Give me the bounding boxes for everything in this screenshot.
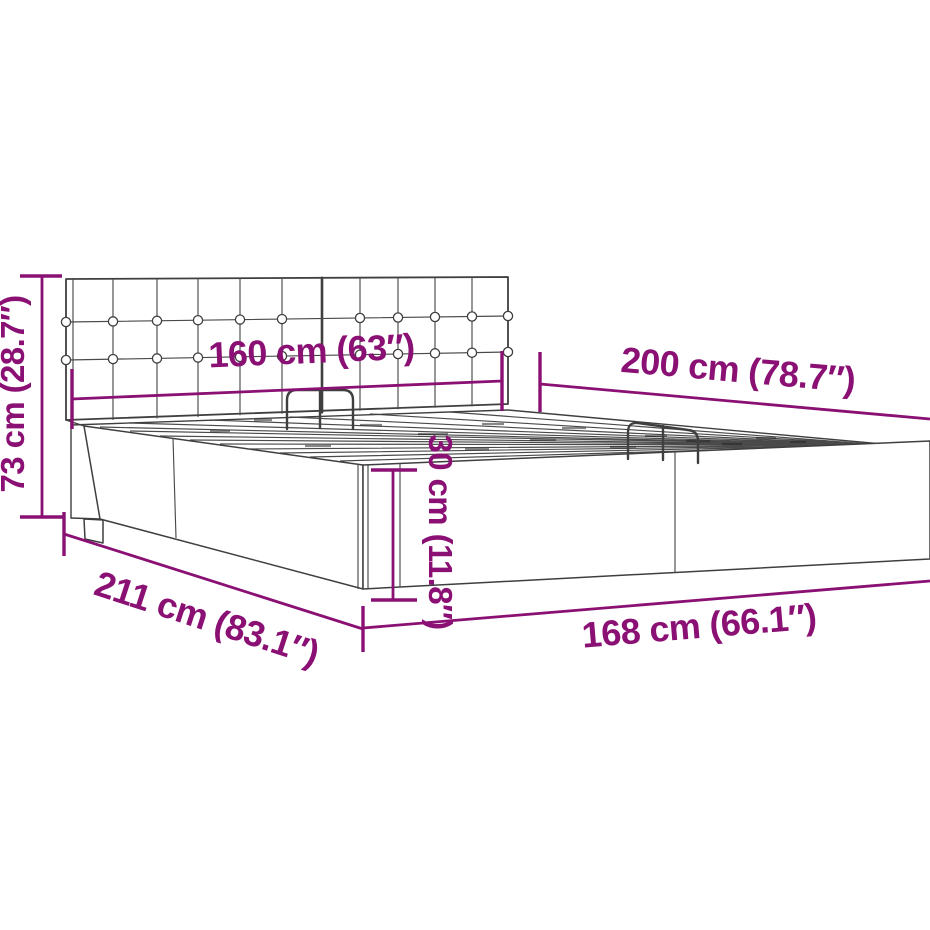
dimension-bed-length: 200 cm (78.7″) bbox=[540, 339, 930, 419]
bed-dimension-diagram: 73 cm (28.7″) 160 cm (63″) 200 cm (78.7″… bbox=[0, 0, 930, 930]
bed-leg bbox=[84, 519, 103, 543]
dimension-label-headboard-height: 73 cm (28.7″) bbox=[0, 296, 31, 493]
dimension-label-total-width: 168 cm (66.1″) bbox=[580, 595, 818, 655]
side-panel-left bbox=[84, 426, 363, 589]
dimension-label-bed-length: 200 cm (78.7″) bbox=[619, 339, 857, 400]
dimension-label-base-height: 30 cm (11.8″) bbox=[422, 434, 459, 629]
dimension-headboard-height: 73 cm (28.7″) bbox=[0, 276, 64, 517]
diagram-canvas: 73 cm (28.7″) 160 cm (63″) 200 cm (78.7″… bbox=[0, 0, 930, 930]
